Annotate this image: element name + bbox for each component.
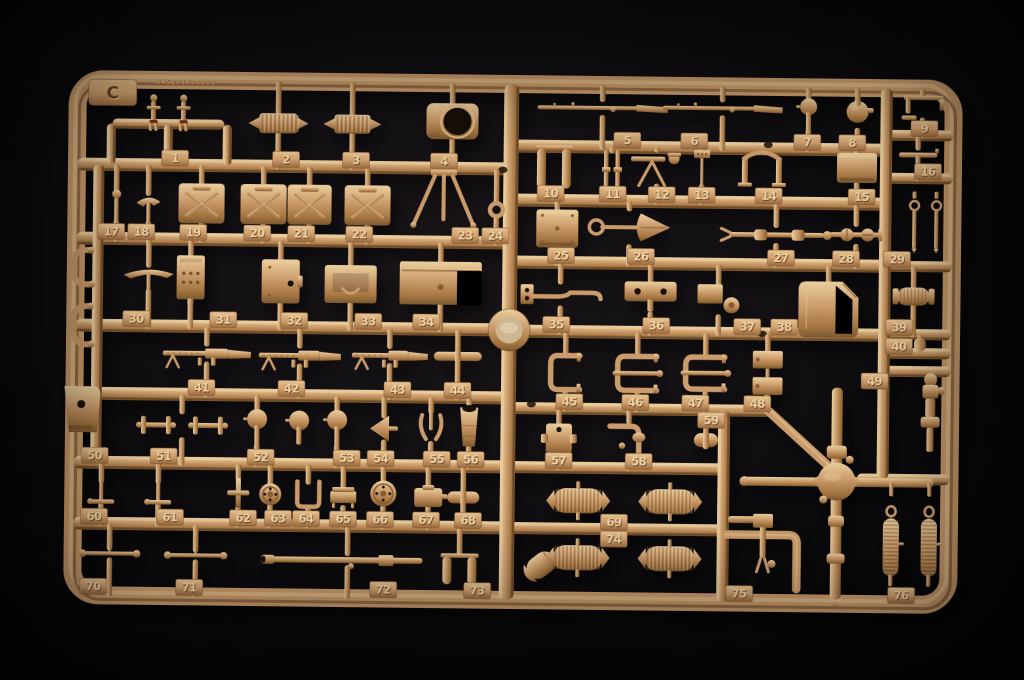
svg-text:40: 40	[891, 339, 907, 353]
part-47	[680, 354, 731, 393]
part-64	[297, 482, 319, 507]
svg-text:45: 45	[562, 395, 578, 409]
part-number-tab-69: 6969	[600, 514, 627, 530]
sprue-rail	[884, 366, 951, 378]
svg-text:15: 15	[854, 190, 870, 204]
part-number-tab-67: 6767	[412, 512, 439, 528]
part-32	[261, 259, 302, 303]
part-22	[344, 185, 390, 226]
part-27	[721, 228, 832, 241]
part-number-tab-14: 1414	[755, 188, 782, 204]
svg-text:C: C	[106, 83, 119, 103]
svg-text:52: 52	[253, 450, 268, 464]
part-number-tab-49: 4949	[861, 373, 888, 389]
sprue-rail	[508, 461, 730, 476]
part-number-tab-70: 7070	[80, 578, 107, 594]
part-number-tab-68: 6868	[454, 512, 481, 528]
svg-text:68: 68	[460, 513, 476, 527]
svg-text:19: 19	[186, 225, 202, 239]
part-57	[541, 423, 577, 453]
svg-text:57: 57	[551, 453, 567, 467]
part-55	[421, 411, 442, 439]
part-number-tab-63: 6363	[264, 510, 291, 526]
part-number-tab-65: 6565	[329, 511, 356, 527]
part-53	[323, 410, 347, 446]
part-29	[910, 192, 942, 254]
svg-text:25: 25	[553, 248, 569, 262]
part-59	[694, 431, 718, 449]
svg-text:51: 51	[156, 449, 172, 463]
sprue-rail	[716, 410, 730, 602]
part-number-tab-52: 5252	[247, 449, 274, 465]
part-number-tab-56: 5656	[457, 451, 484, 467]
part-number-tab-50: 5050	[81, 447, 108, 463]
part-number-tab-6: 66	[681, 133, 708, 149]
svg-text:17: 17	[104, 224, 120, 238]
part-8	[847, 98, 874, 123]
svg-text:76: 76	[894, 588, 910, 602]
part-number-tab-46: 4646	[622, 394, 649, 410]
part-number-tab-74: 7474	[600, 531, 627, 547]
svg-text:30: 30	[129, 312, 145, 326]
svg-text:44: 44	[450, 383, 466, 397]
part-number-tab-25: 2525	[547, 247, 574, 263]
part-37	[697, 284, 739, 313]
part-50	[64, 386, 101, 432]
part-number-tab-4: 44	[430, 153, 457, 169]
part-number-tab-15: 1515	[848, 189, 875, 205]
part-18	[136, 197, 160, 223]
part-number-tab-13: 1313	[688, 187, 715, 203]
part-45	[550, 352, 580, 392]
part-13	[694, 150, 710, 186]
part-number-tab-66: 6666	[366, 511, 393, 527]
part-number-tab-33: 3333	[355, 313, 382, 329]
part-6	[663, 102, 783, 113]
part-36	[624, 281, 676, 312]
part-number-tab-39: 3939	[886, 319, 913, 335]
svg-text:47: 47	[688, 396, 704, 410]
sprue-rail	[106, 123, 115, 164]
svg-text:20: 20	[250, 226, 266, 240]
part-20	[240, 184, 286, 225]
part-7	[796, 98, 817, 130]
svg-text:62: 62	[235, 511, 250, 525]
svg-text:60: 60	[86, 509, 102, 523]
part-number-tab-24: 2424	[482, 228, 509, 244]
part-60	[87, 480, 114, 504]
part-65	[330, 487, 356, 508]
part-number-tab-21: 2121	[288, 225, 315, 241]
svg-text:58: 58	[631, 454, 647, 468]
svg-text:59: 59	[704, 413, 720, 427]
svg-text:3: 3	[352, 153, 360, 167]
svg-text:12: 12	[654, 188, 669, 202]
part-number-tab-31: 3131	[210, 312, 237, 328]
part-3	[323, 114, 381, 134]
part-number-tab-3: 33	[342, 152, 369, 168]
svg-text:61: 61	[162, 510, 178, 524]
sprue-piece-diffaxle	[738, 387, 934, 609]
part-73	[440, 553, 478, 584]
svg-text:23: 23	[458, 228, 474, 242]
part-14	[738, 152, 786, 187]
part-number-tab-35: 3535	[543, 316, 570, 332]
part-number-tab-43: 4343	[384, 382, 411, 398]
part-70	[79, 545, 141, 557]
svg-text:10: 10	[543, 186, 559, 200]
svg-text:26: 26	[633, 249, 649, 263]
svg-text:34: 34	[419, 315, 435, 329]
part-number-tab-7: 77	[794, 134, 821, 150]
part-number-tab-29: 2929	[883, 251, 910, 267]
part-28	[830, 228, 882, 242]
part-11	[602, 150, 622, 190]
part-number-tab-73: 7373	[464, 582, 491, 598]
svg-text:22: 22	[352, 227, 367, 241]
embossed-mold-code: 845291845293845291845293	[156, 79, 216, 87]
part-21	[287, 184, 331, 224]
part-25	[536, 209, 578, 247]
svg-text:14: 14	[761, 189, 777, 203]
sprue: CC84529184529384529184529311223344556677…	[62, 76, 956, 609]
svg-text:9: 9	[921, 122, 929, 136]
part-23	[410, 169, 477, 229]
svg-text:54: 54	[373, 451, 389, 465]
part-number-tab-23: 2323	[452, 227, 479, 243]
part-67	[414, 485, 447, 507]
part-56	[460, 405, 478, 447]
part-number-tab-72: 7272	[370, 581, 397, 597]
part-number-tab-16: 1616	[914, 164, 941, 180]
part-number-tab-60: 6060	[80, 508, 107, 524]
part-number-tab-53: 5353	[333, 450, 360, 466]
svg-text:72: 72	[376, 582, 391, 596]
part-number-tab-47: 4747	[682, 395, 709, 411]
part-number-tab-2: 22	[272, 151, 299, 167]
svg-text:36: 36	[649, 319, 665, 333]
part-number-tab-55: 5555	[423, 451, 450, 467]
svg-text:35: 35	[549, 317, 565, 331]
part-number-tab-10: 1010	[537, 185, 564, 201]
svg-text:64: 64	[298, 512, 314, 526]
sprue-piece-ballstem	[285, 410, 309, 444]
part-44	[434, 350, 482, 364]
part-46	[612, 353, 663, 394]
part-17	[112, 189, 121, 221]
part-number-tab-19: 1919	[180, 224, 207, 240]
svg-text:55: 55	[429, 452, 445, 466]
sprue-photo: Photograph of a tan plastic model-kit sp…	[0, 0, 1024, 680]
part-number-tab-34: 3434	[413, 314, 440, 330]
svg-text:7: 7	[803, 135, 811, 149]
svg-text:38: 38	[777, 320, 793, 334]
svg-text:845291845293: 845291845293	[156, 79, 216, 87]
part-63	[259, 483, 281, 505]
svg-text:16: 16	[920, 165, 936, 179]
part-number-tab-76: 7676	[888, 587, 915, 603]
svg-text:74: 74	[606, 532, 622, 546]
svg-text:28: 28	[838, 252, 854, 266]
svg-text:24: 24	[488, 229, 504, 243]
part-number-tab-58: 5858	[625, 453, 652, 469]
svg-text:50: 50	[87, 448, 103, 462]
part-number-tab-75: 7575	[726, 585, 753, 601]
part-38	[798, 281, 859, 338]
part-number-tab-1: 11	[161, 150, 188, 166]
part-number-tab-18: 1818	[128, 224, 155, 240]
svg-text:31: 31	[216, 313, 232, 327]
part-33	[324, 265, 376, 304]
part-number-tab-20: 2020	[244, 225, 271, 241]
svg-text:56: 56	[463, 452, 479, 466]
part-number-tab-17: 1717	[98, 223, 125, 239]
part-58	[610, 426, 646, 455]
svg-text:42: 42	[284, 381, 299, 395]
part-66	[370, 480, 396, 506]
svg-text:1: 1	[171, 151, 179, 165]
svg-text:21: 21	[294, 227, 310, 241]
part-number-tab-62: 6262	[229, 510, 256, 526]
sprue-letter-tab: CC	[89, 79, 137, 106]
part-2	[248, 113, 308, 134]
part-number-tab-59: 5959	[698, 412, 725, 428]
part-number-tab-11: 1111	[599, 186, 626, 202]
part-62	[227, 478, 249, 508]
part-40	[914, 338, 926, 352]
part-number-tab-48: 4848	[744, 396, 771, 412]
part-number-tab-71: 7171	[176, 579, 203, 595]
part-number-tab-64: 6464	[292, 511, 319, 527]
part-number-tab-42: 4242	[278, 380, 305, 396]
svg-text:71: 71	[182, 580, 198, 594]
part-52	[243, 409, 267, 445]
svg-text:8: 8	[848, 136, 856, 150]
part-31	[176, 255, 205, 305]
part-26	[589, 213, 670, 242]
svg-text:6: 6	[690, 134, 698, 148]
part-54	[370, 415, 398, 441]
part-76	[882, 482, 942, 587]
svg-text:65: 65	[335, 512, 351, 526]
svg-text:46: 46	[628, 395, 644, 409]
svg-text:13: 13	[694, 188, 710, 202]
svg-text:73: 73	[470, 584, 486, 598]
svg-text:69: 69	[606, 515, 622, 529]
part-number-tab-40: 4040	[885, 338, 912, 354]
svg-text:75: 75	[732, 587, 748, 601]
part-number-tab-51: 5151	[150, 448, 177, 464]
part-30	[124, 269, 174, 291]
svg-text:27: 27	[773, 251, 789, 265]
svg-text:70: 70	[86, 579, 102, 593]
part-71	[164, 547, 228, 560]
part-24	[490, 203, 503, 216]
svg-text:29: 29	[889, 252, 905, 266]
part-72	[261, 554, 422, 570]
svg-text:33: 33	[361, 314, 377, 328]
part-number-tab-37: 3737	[734, 319, 761, 335]
svg-text:41: 41	[194, 380, 210, 394]
sprue-rail	[222, 125, 231, 166]
svg-text:39: 39	[892, 320, 908, 334]
part-34	[399, 261, 481, 305]
svg-text:11: 11	[605, 187, 621, 201]
part-number-tab-61: 6161	[156, 509, 183, 525]
part-number-tab-5: 55	[614, 132, 641, 148]
svg-text:48: 48	[750, 397, 766, 411]
part-number-tab-28: 2828	[832, 251, 859, 267]
part-75	[752, 514, 776, 572]
part-19	[178, 183, 224, 224]
part-number-tab-38: 3838	[771, 319, 798, 335]
part-48	[752, 351, 782, 395]
part-4	[426, 103, 478, 140]
svg-text:2: 2	[282, 152, 290, 166]
part-35	[520, 284, 600, 305]
part-51	[136, 416, 228, 435]
svg-text:37: 37	[740, 320, 756, 334]
part-61	[144, 481, 171, 505]
part-12	[631, 152, 681, 186]
part-5	[538, 102, 668, 113]
svg-text:4: 4	[440, 154, 448, 168]
svg-text:66: 66	[372, 512, 388, 526]
part-number-tab-30: 3030	[123, 311, 150, 327]
part-number-tab-9: 99	[911, 121, 938, 137]
part-39	[892, 287, 934, 305]
part-number-tab-26: 2626	[627, 248, 654, 264]
part-number-tab-27: 2727	[767, 250, 794, 266]
part-number-tab-57: 5757	[545, 452, 572, 468]
part-number-tab-22: 2222	[346, 226, 373, 242]
svg-text:53: 53	[339, 451, 355, 465]
svg-text:49: 49	[867, 374, 883, 388]
part-9	[902, 95, 944, 120]
svg-text:5: 5	[623, 133, 631, 147]
part-number-tab-54: 5454	[367, 450, 394, 466]
svg-text:67: 67	[418, 513, 434, 527]
svg-text:18: 18	[134, 225, 150, 239]
part-number-tab-45: 4545	[556, 394, 583, 410]
part-15	[837, 153, 877, 183]
svg-text:43: 43	[390, 383, 406, 397]
part-68	[447, 489, 479, 505]
part-number-tab-41: 4141	[188, 379, 215, 395]
part-number-tab-12: 1212	[648, 187, 675, 203]
part-number-tab-32: 3232	[281, 312, 308, 328]
svg-text:32: 32	[287, 313, 302, 327]
part-number-tab-44: 4444	[444, 382, 471, 398]
part-number-tab-36: 3636	[643, 317, 670, 333]
sprue-canvas: Photograph of a tan plastic model-kit sp…	[0, 0, 1024, 680]
part-number-tab-8: 88	[839, 135, 866, 151]
svg-text:63: 63	[270, 511, 286, 525]
